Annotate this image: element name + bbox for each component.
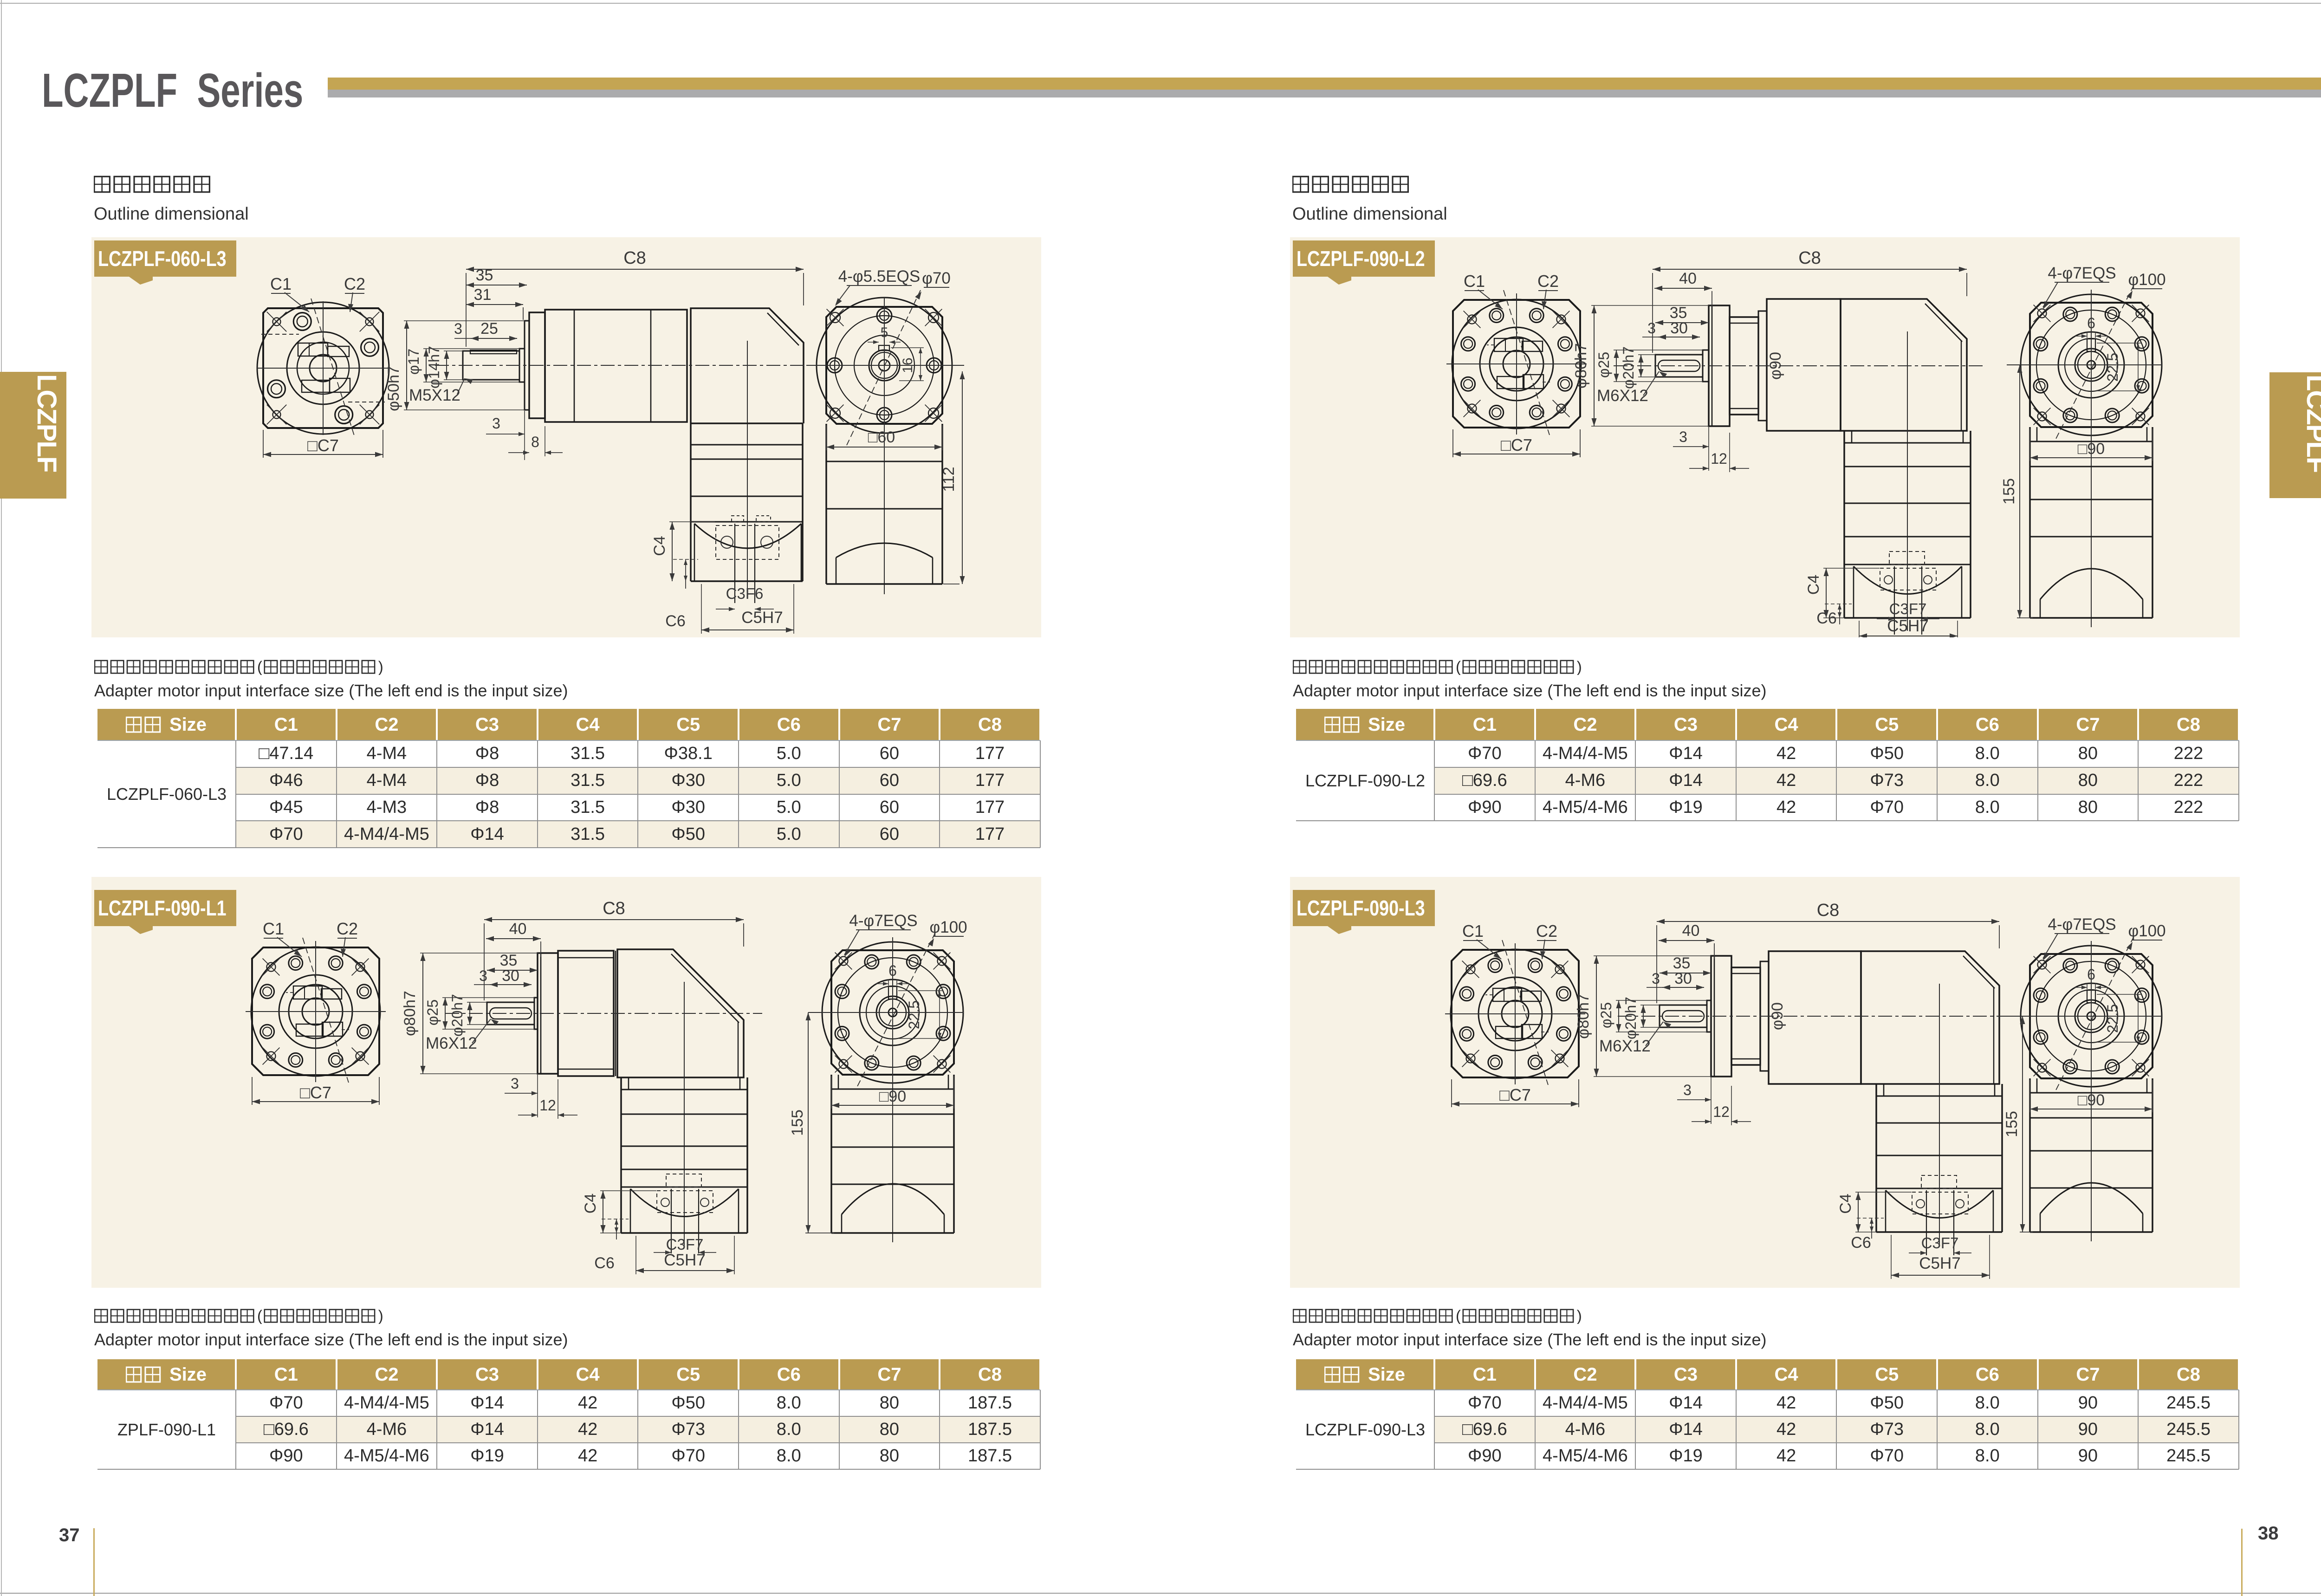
svg-text:40: 40 [509,920,527,938]
svg-text:C6: C6 [665,612,685,630]
svg-text:C3F7: C3F7 [1921,1234,1959,1252]
svg-text:φ50h7: φ50h7 [385,366,402,411]
svg-text:3: 3 [454,320,462,337]
svg-text:φ100: φ100 [2128,922,2165,940]
svg-text:155: 155 [2003,1111,2021,1137]
svg-text:3: 3 [1652,970,1660,987]
svg-text:3: 3 [479,967,487,984]
svg-text:12: 12 [539,1097,556,1114]
svg-text:8: 8 [531,434,539,450]
svg-text:□90: □90 [2078,1091,2105,1109]
svg-text:40: 40 [1682,922,1700,940]
svg-text:M5X12: M5X12 [409,386,460,404]
svg-text:C5H7: C5H7 [741,609,783,627]
svg-text:C3F7: C3F7 [1889,600,1927,617]
svg-text:40: 40 [1679,270,1697,287]
svg-text:4-φ7EQS: 4-φ7EQS [849,912,917,930]
svg-text:25: 25 [480,320,498,337]
svg-text:C1: C1 [270,274,292,293]
svg-text:C2: C2 [1537,272,1559,291]
svg-text:): ) [1577,659,1582,675]
svg-text:C6: C6 [1851,1234,1871,1252]
svg-text:C8: C8 [1817,901,1840,920]
svg-text:35: 35 [476,266,493,284]
svg-text:C1: C1 [1464,272,1485,291]
svg-text:31: 31 [474,286,492,304]
svg-text:□C7: □C7 [1501,435,1532,454]
svg-text:30: 30 [1674,970,1692,987]
svg-text:4-φ7EQS: 4-φ7EQS [2048,915,2116,934]
svg-text:□C7: □C7 [1499,1085,1531,1104]
svg-text:30: 30 [502,967,519,985]
svg-text:φ25: φ25 [1595,352,1612,378]
svg-text:C4: C4 [651,536,668,556]
svg-text:(: ( [257,1308,262,1324]
svg-text:12: 12 [1711,450,1727,467]
svg-text:): ) [378,659,383,675]
svg-text:4-φ7EQS: 4-φ7EQS [2048,264,2116,282]
svg-text:C4: C4 [1805,575,1822,595]
svg-text:C8: C8 [603,899,625,918]
svg-text:C5H7: C5H7 [664,1251,705,1269]
svg-text:16: 16 [900,357,915,373]
svg-text:3: 3 [511,1075,519,1092]
svg-text:φ14h7: φ14h7 [426,346,442,389]
svg-text:22.5: 22.5 [2104,353,2121,382]
svg-text:): ) [1577,1308,1582,1324]
svg-text:3: 3 [1647,320,1656,337]
svg-text:C2: C2 [337,919,358,938]
svg-text:C6: C6 [594,1254,614,1272]
svg-text:(: ( [1456,1308,1461,1324]
svg-text:□90: □90 [2078,440,2105,458]
svg-text:M6X12: M6X12 [1599,1037,1651,1055]
svg-text:6: 6 [888,962,897,979]
svg-text:6: 6 [2087,966,2095,983]
svg-text:φ20h7: φ20h7 [1622,997,1639,1039]
svg-text:22.5: 22.5 [2104,1004,2121,1033]
svg-text:φ80h7: φ80h7 [401,991,419,1036]
svg-text:C3F6: C3F6 [726,585,764,602]
svg-text:C4: C4 [1837,1194,1854,1213]
svg-text:φ20h7: φ20h7 [449,994,466,1037]
svg-text:C8: C8 [623,248,646,268]
svg-text:C6: C6 [1816,610,1836,627]
svg-text:φ80h7: φ80h7 [1575,993,1592,1039]
svg-text:(: ( [257,659,262,675]
svg-text:12: 12 [1713,1103,1730,1120]
svg-text:3: 3 [1679,428,1687,445]
svg-text:C2: C2 [344,274,365,293]
svg-text:22.5: 22.5 [906,1000,922,1029]
svg-text:30: 30 [1670,319,1688,337]
svg-text:C4: C4 [582,1194,599,1213]
svg-text:φ20h7: φ20h7 [1620,346,1637,389]
svg-text:112: 112 [940,467,958,492]
svg-text:C8: C8 [1798,248,1821,268]
svg-text:C1: C1 [263,919,284,938]
svg-text:□90: □90 [879,1088,906,1105]
svg-text:M6X12: M6X12 [1597,387,1648,405]
svg-text:6: 6 [2087,315,2095,331]
svg-text:φ17: φ17 [405,349,422,375]
svg-text:φ25: φ25 [1598,1002,1614,1028]
svg-text:): ) [378,1308,383,1324]
svg-text:□C7: □C7 [300,1083,331,1102]
svg-text:C1: C1 [1462,921,1484,941]
svg-text:5: 5 [881,325,888,340]
svg-text:M6X12: M6X12 [426,1034,477,1052]
svg-text:φ25: φ25 [424,999,441,1025]
svg-text:3: 3 [492,415,500,432]
svg-text:φ70: φ70 [922,269,951,287]
svg-text:C2: C2 [1536,921,1557,941]
svg-text:4-φ5.5EQS: 4-φ5.5EQS [838,267,920,285]
svg-text:φ80h7: φ80h7 [1572,343,1590,389]
svg-text:155: 155 [789,1109,806,1136]
svg-text:3: 3 [1683,1082,1692,1098]
svg-text:C5H7: C5H7 [1919,1254,1960,1272]
svg-text:C5H7: C5H7 [1887,617,1928,635]
svg-text:□60: □60 [868,428,895,446]
svg-text:(: ( [1456,659,1461,675]
svg-text:155: 155 [2000,478,2018,505]
svg-text:C3F7: C3F7 [666,1236,704,1253]
svg-text:□C7: □C7 [307,436,339,455]
svg-text:φ100: φ100 [929,918,967,936]
svg-text:φ100: φ100 [2128,271,2165,289]
